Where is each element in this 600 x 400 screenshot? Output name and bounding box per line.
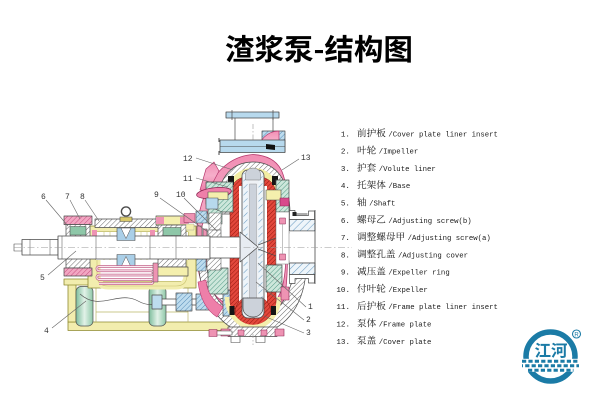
svg-text:12: 12 (183, 155, 193, 164)
svg-text:9: 9 (154, 191, 159, 200)
svg-text:4: 4 (44, 327, 49, 336)
svg-text:1.: 1. (341, 131, 350, 139)
svg-text:/Impeller: /Impeller (379, 149, 418, 157)
svg-text:8: 8 (80, 193, 85, 202)
svg-text:/Expeller ring: /Expeller ring (388, 270, 449, 278)
svg-text:6: 6 (41, 193, 46, 202)
svg-text:/Volute liner: /Volute liner (379, 166, 436, 174)
svg-text:12.: 12. (336, 322, 350, 330)
svg-text:11.: 11. (336, 304, 350, 312)
svg-text:/Adjusting screw(a): /Adjusting screw(a) (408, 235, 491, 243)
svg-text:/Base: /Base (388, 183, 410, 191)
svg-text:5.: 5. (341, 201, 350, 209)
svg-text:/Cover plate liner insert: /Cover plate liner insert (388, 131, 497, 139)
svg-text:/Cover plate: /Cover plate (379, 339, 432, 347)
svg-text:/Shaft: /Shaft (369, 201, 395, 209)
svg-text:2.: 2. (341, 149, 350, 157)
svg-text:/Adjusting screw(b): /Adjusting screw(b) (388, 218, 471, 226)
svg-text:9.: 9. (341, 270, 350, 278)
svg-text:10: 10 (176, 191, 186, 200)
svg-text:8.: 8. (341, 252, 350, 260)
svg-text:5: 5 (40, 274, 45, 283)
svg-text:/Adjusting cover: /Adjusting cover (398, 252, 468, 260)
svg-text:3: 3 (306, 329, 311, 338)
svg-text:7.: 7. (341, 235, 350, 243)
svg-text:R: R (574, 333, 579, 339)
svg-text:7: 7 (65, 193, 70, 202)
svg-text:/Frame plate: /Frame plate (379, 322, 432, 330)
svg-text:11: 11 (183, 175, 193, 184)
svg-text:1: 1 (308, 303, 313, 312)
svg-text:10.: 10. (336, 287, 350, 295)
svg-text:13: 13 (301, 154, 311, 163)
svg-text:2: 2 (306, 316, 311, 325)
svg-text:13.: 13. (336, 339, 350, 347)
svg-text:/Expeller: /Expeller (388, 287, 427, 295)
svg-text:6.: 6. (341, 218, 350, 226)
svg-text:/Frame plate liner insert: /Frame plate liner insert (388, 304, 497, 312)
svg-text:3.: 3. (341, 166, 350, 174)
svg-text:4.: 4. (341, 183, 350, 191)
